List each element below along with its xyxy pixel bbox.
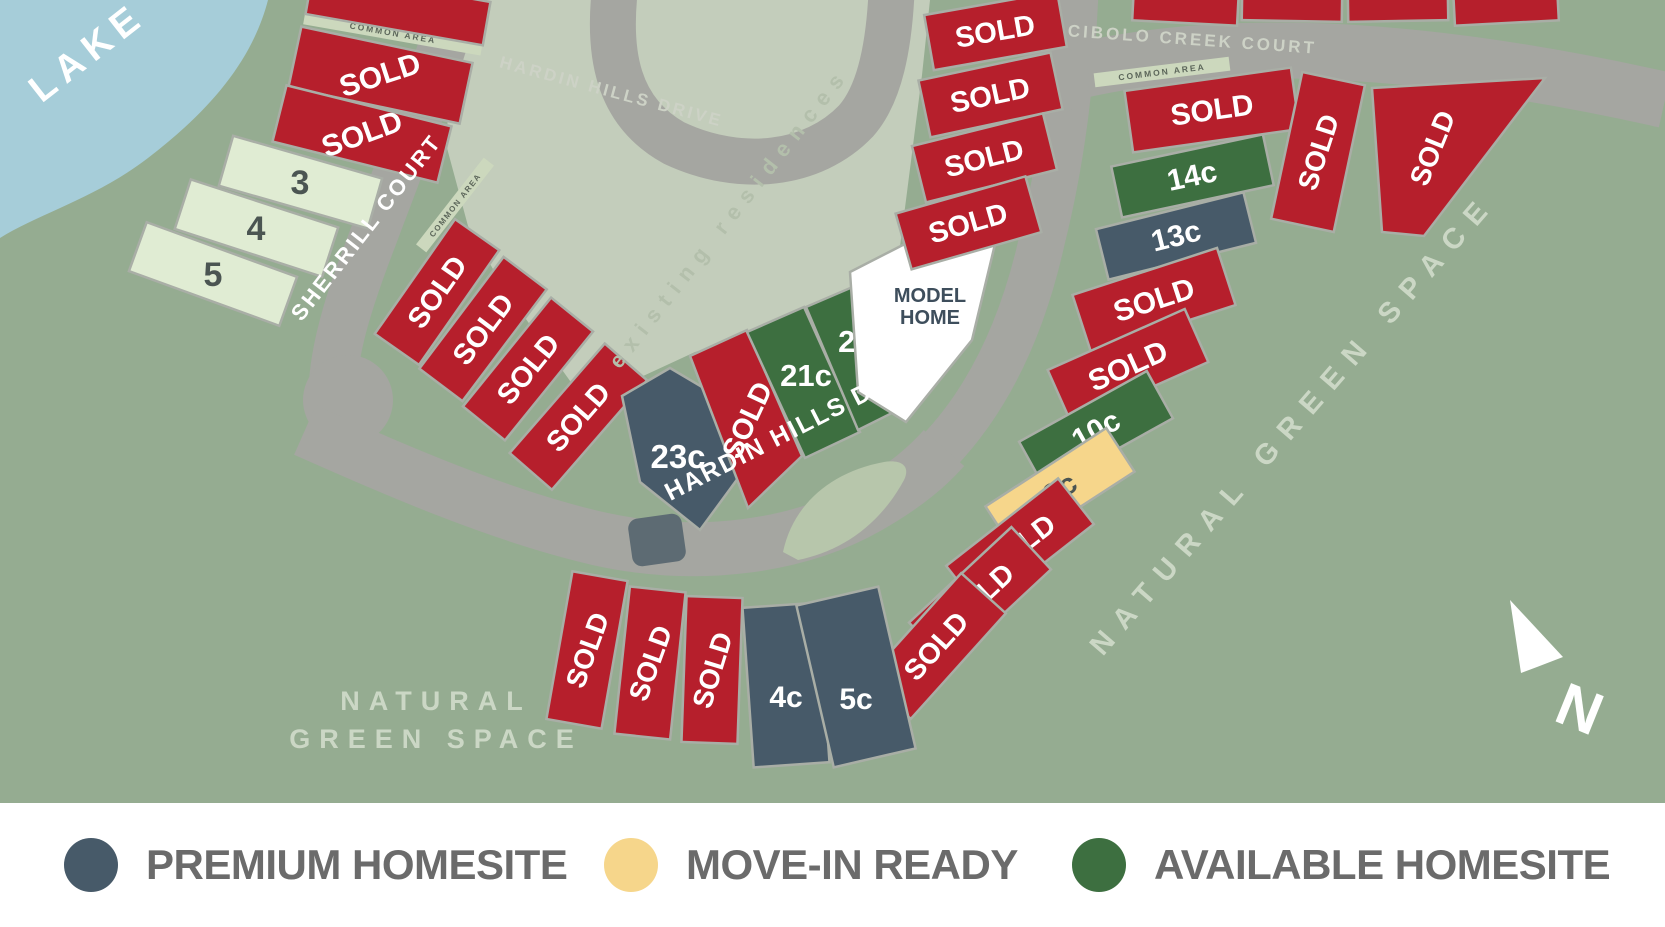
lot-sliver-4[interactable] (1453, 0, 1559, 26)
site-map: COMMON AREA COMMON AREA COMMON AREA SOLD (0, 0, 1665, 803)
legend-item-premium: PREMIUM HOMESITE (64, 838, 567, 892)
site-map-svg: COMMON AREA COMMON AREA COMMON AREA SOLD (0, 0, 1665, 803)
lot-sliver-3[interactable] (1348, 0, 1449, 22)
premium-homesite-swatch-icon (64, 838, 118, 892)
svg-text:4c: 4c (769, 681, 802, 714)
legend-label-move-in: MOVE-IN READY (686, 841, 1018, 889)
svg-text:5c: 5c (839, 683, 872, 716)
turnaround-island (627, 512, 687, 567)
legend-label-premium: PREMIUM HOMESITE (146, 841, 567, 889)
lot-sliver-1[interactable] (1132, 0, 1239, 26)
svg-text:5: 5 (204, 256, 223, 294)
green-space-label-left-line2: GREEN SPACE (289, 724, 583, 754)
sitemap-page: COMMON AREA COMMON AREA COMMON AREA SOLD (0, 0, 1665, 927)
legend-item-available: AVAILABLE HOMESITE (1072, 838, 1610, 892)
model-home-label-line1: MODEL (894, 285, 966, 307)
legend: PREMIUM HOMESITE MOVE-IN READY AVAILABLE… (0, 803, 1665, 927)
legend-label-available: AVAILABLE HOMESITE (1154, 841, 1610, 889)
svg-text:21c: 21c (780, 358, 832, 393)
model-home-label-line2: HOME (900, 307, 960, 329)
lot-sold-b3[interactable]: SOLD (681, 596, 742, 744)
legend-item-move-in: MOVE-IN READY (604, 838, 1018, 892)
green-space-label-left-line1: NATURAL (340, 686, 531, 716)
available-homesite-swatch-icon (1072, 838, 1126, 892)
move-in-ready-swatch-icon (604, 838, 658, 892)
svg-text:4: 4 (247, 210, 266, 248)
svg-text:3: 3 (291, 164, 310, 202)
lot-sliver-2[interactable] (1242, 0, 1343, 22)
